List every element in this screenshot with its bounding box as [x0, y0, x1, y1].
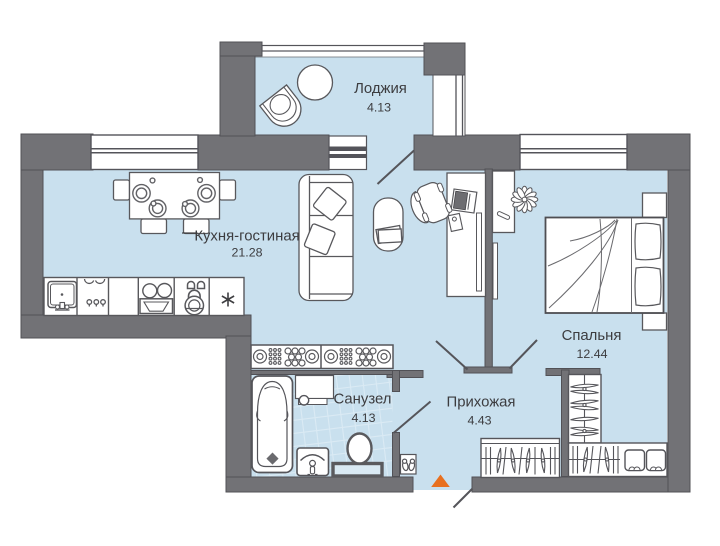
svg-text:4.13: 4.13 [351, 411, 375, 425]
svg-text:4.13: 4.13 [367, 101, 391, 115]
svg-text:Кухня-гостиная: Кухня-гостиная [194, 229, 299, 245]
svg-text:4.43: 4.43 [467, 414, 491, 428]
svg-text:Лоджия: Лоджия [354, 81, 407, 97]
svg-text:Прихожая: Прихожая [447, 395, 516, 411]
svg-text:Спальня: Спальня [562, 328, 622, 344]
svg-text:12.44: 12.44 [576, 347, 607, 361]
svg-text:21.28: 21.28 [231, 246, 262, 260]
svg-text:Санузел: Санузел [333, 392, 391, 408]
